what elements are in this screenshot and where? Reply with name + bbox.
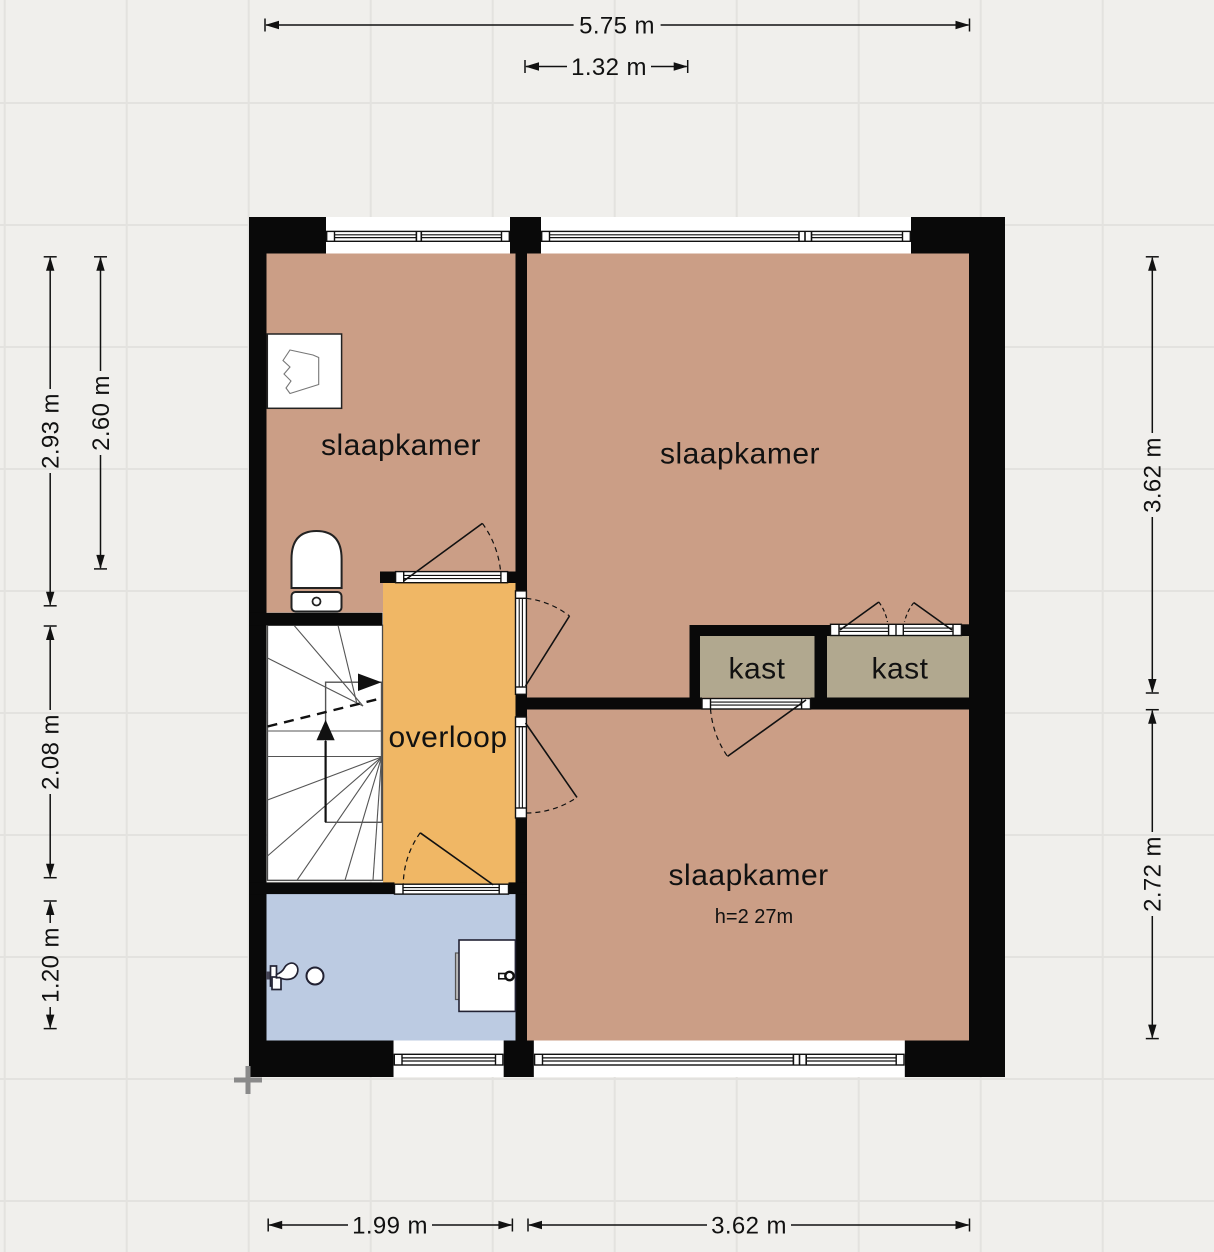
svg-text:slaapkamer: slaapkamer [321, 429, 481, 462]
svg-text:3.62 m: 3.62 m [711, 1212, 787, 1239]
svg-text:1.20 m: 1.20 m [37, 927, 64, 1003]
svg-text:kast: kast [728, 653, 785, 686]
svg-text:h=2 27m: h=2 27m [715, 906, 793, 928]
svg-text:3.62 m: 3.62 m [1140, 437, 1167, 513]
svg-text:slaapkamer: slaapkamer [669, 859, 829, 892]
svg-text:overloop: overloop [388, 721, 507, 754]
svg-text:5.75 m: 5.75 m [579, 12, 655, 39]
svg-text:1.32 m: 1.32 m [571, 54, 647, 81]
svg-text:1.99 m: 1.99 m [352, 1212, 428, 1239]
svg-text:2.60 m: 2.60 m [88, 375, 115, 451]
svg-text:kast: kast [871, 653, 928, 686]
svg-text:2.93 m: 2.93 m [37, 393, 64, 469]
svg-text:slaapkamer: slaapkamer [660, 438, 820, 471]
svg-text:2.08 m: 2.08 m [37, 714, 64, 790]
svg-text:2.72 m: 2.72 m [1140, 836, 1167, 912]
